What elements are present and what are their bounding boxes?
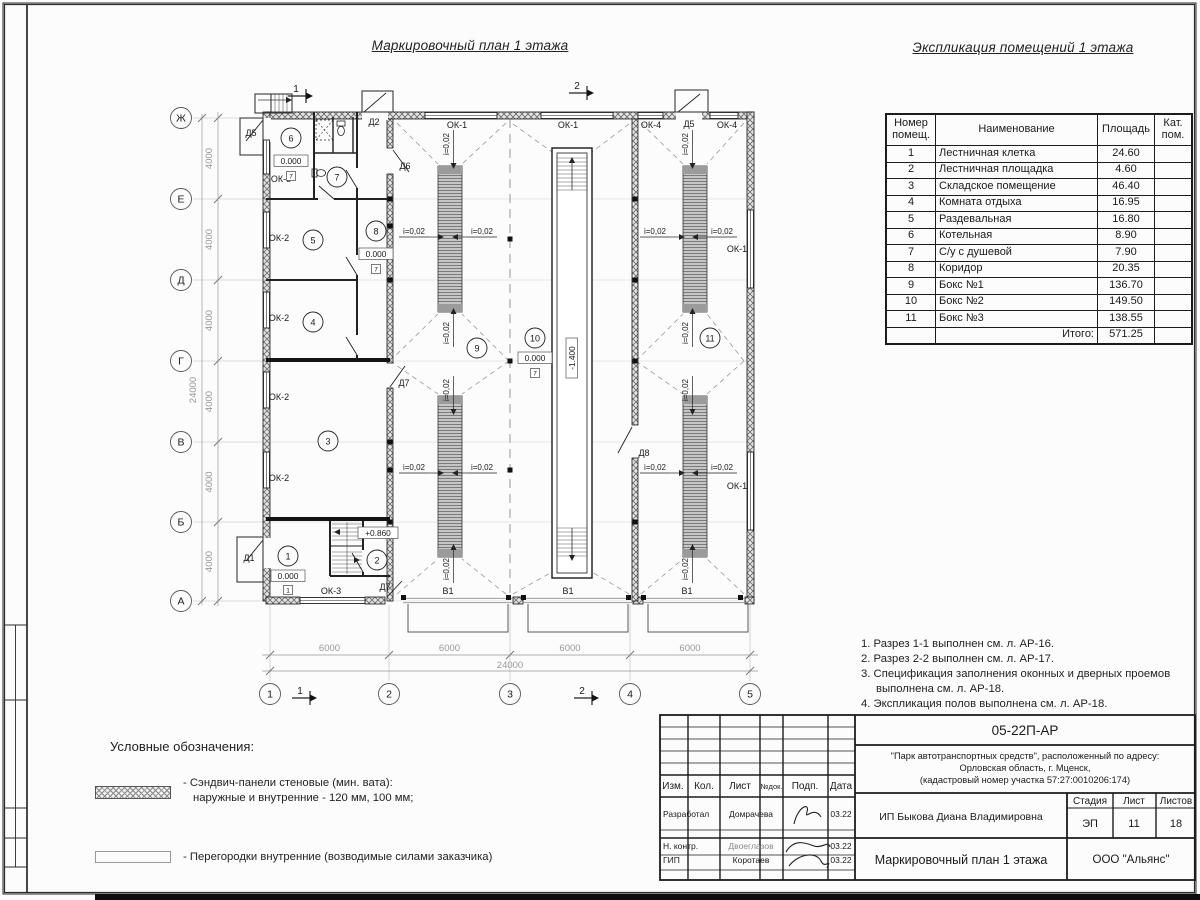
room-number: 2 [374, 555, 379, 565]
table-row: 8Коридор20.35 [886, 261, 1192, 278]
signature-role: ГИП [663, 855, 680, 865]
project-line-1: "Парк автотранспортных средств", располо… [891, 751, 1160, 761]
grid-bubble-label: 1 [267, 689, 273, 701]
opening-mark: ОК-4 [717, 120, 737, 130]
elevation-mark: 0.000 [274, 155, 308, 167]
room-name-cell: Лестничная площадка [936, 162, 1098, 179]
drawing-sheet: { "sheet": { "plan_title": "Маркировочны… [0, 0, 1200, 900]
grid-bubble-label: 3 [507, 689, 513, 701]
total-cat-cell [1155, 327, 1193, 344]
opening-mark: ОК-2 [269, 313, 289, 323]
elevation-mark: +0.860 [358, 527, 398, 539]
grid-bubble-label: Ж [176, 113, 186, 125]
opening-mark: В1 [681, 586, 692, 596]
explication-table: Номер помещ. Наименование Площадь Кат. п… [885, 113, 1193, 345]
room-category-cell [1155, 245, 1193, 262]
opening-mark: В1 [562, 586, 573, 596]
opening-mark: ОК-2 [269, 392, 289, 402]
room-number-cell: 5 [886, 212, 936, 229]
shower-tray [316, 120, 333, 140]
room-number: 5 [310, 235, 315, 245]
elevation-mark: 0.000 [359, 248, 393, 260]
room-area-cell: 7.90 [1098, 245, 1155, 262]
company-name: ООО "Альянс" [1093, 854, 1170, 866]
room-area-cell: 16.95 [1098, 195, 1155, 212]
slope-label: i=0,02 [711, 463, 734, 472]
room-number-cell: 2 [886, 162, 936, 179]
titleblock-column-header: №док. [761, 782, 783, 791]
slope-label: i=0,02 [644, 227, 667, 236]
table-row: 6Котельная8.90 [886, 228, 1192, 245]
elevation-mark: 0.000 [518, 352, 552, 364]
floor-type-value: 7 [533, 370, 537, 377]
room-number: 6 [288, 133, 293, 143]
elevation-value: +0.860 [365, 528, 391, 538]
room-category-cell [1155, 195, 1193, 212]
stage-value: ЭП [1082, 818, 1098, 830]
signature-role: Разработал [663, 809, 709, 819]
section-mark-arrow [592, 695, 599, 702]
note-item: 4. Экспликация полов выполнена см. л. АР… [861, 697, 1183, 712]
room-number-cell: 6 [886, 228, 936, 245]
opening-mark: Д2 [368, 117, 379, 127]
dim-value: 4000 [204, 310, 215, 331]
slope-label: i=0,02 [442, 557, 451, 580]
header-room-cat: Кат. пом. [1155, 114, 1193, 146]
room-category-cell [1155, 228, 1193, 245]
room-name-cell: Раздевальная [936, 212, 1098, 229]
floor-type-value: 7 [374, 266, 378, 273]
room-number-cell: 1 [886, 146, 936, 163]
signature-date: 03.22 [830, 855, 852, 865]
opening-mark: ОК-1 [558, 120, 578, 130]
total-empty-cell [886, 327, 936, 344]
titleblock-column-header: Кол. [694, 781, 714, 792]
sheet-label: Лист [1123, 796, 1145, 807]
slope-label: i=0,02 [644, 463, 667, 472]
staircase [330, 522, 362, 574]
signature-name: Домрачева [729, 809, 773, 819]
table-row: 2Лестничная площадка4.60 [886, 162, 1192, 179]
elevation-mark: -1.400 [566, 338, 578, 378]
table-row: 10Бокс №2149.50 [886, 294, 1192, 311]
room-name-cell: Бокс №3 [936, 311, 1098, 328]
floor-type-value: 1 [286, 587, 290, 594]
opening-mark: ОК-1 [727, 244, 747, 254]
floor-type-value: 7 [289, 173, 293, 180]
doc-number: 05-22П-АР [992, 723, 1059, 738]
grid-bubble-label: 2 [386, 689, 392, 701]
signature-date: 03.22 [830, 809, 852, 819]
grid-bubble-label: Д [177, 275, 184, 287]
room-area-cell: 4.60 [1098, 162, 1155, 179]
room-number: 11 [705, 333, 714, 343]
titleblock-column-header: Изм. [662, 781, 683, 792]
signature-name: Двоеглазов [728, 841, 774, 851]
opening-mark: В1 [442, 586, 453, 596]
dim-value: 4000 [204, 391, 215, 412]
section-mark-label: 2 [579, 686, 585, 697]
grid-bubble-label: 4 [627, 689, 633, 701]
table-row: 7С/у с душевой7.90 [886, 245, 1192, 262]
slope-label: i=0,02 [681, 557, 690, 580]
note-item: 1. Разрез 1-1 выполнен см. л. АР-16. [861, 637, 1183, 652]
room-name-cell: Котельная [936, 228, 1098, 245]
room-category-cell [1155, 212, 1193, 229]
legend-sandwich-line2: наружные и внутренние - 120 мм, 100 мм; [183, 791, 513, 806]
header-room-area: Площадь [1098, 114, 1155, 146]
slope-label: i=0,02 [442, 378, 451, 401]
room-number-cell: 9 [886, 278, 936, 295]
room-category-cell [1155, 278, 1193, 295]
total-label-cell: Итого: [936, 327, 1098, 344]
table-row: 5Раздевальная16.80 [886, 212, 1192, 229]
slope-label: i=0,02 [403, 463, 426, 472]
legend-partition-text: - Перегородки внутренние (возводимые сил… [183, 850, 603, 865]
room-area-cell: 149.50 [1098, 294, 1155, 311]
elevation-value: 0.000 [366, 249, 387, 259]
sheets-value: 18 [1170, 818, 1182, 830]
slope-label: i=0,02 [442, 321, 451, 344]
title-block: 05-22П-АР "Парк автотранспортных средств… [660, 715, 1195, 880]
slope-label: i=0,02 [471, 227, 494, 236]
opening-mark: Д1 [243, 553, 254, 563]
slope-label: i=0,02 [442, 132, 451, 155]
room-area-cell: 138.55 [1098, 311, 1155, 328]
grid-bubble-label: Г [178, 356, 184, 368]
room-area-cell: 46.40 [1098, 179, 1155, 196]
titleblock-column-header: Лист [729, 781, 751, 792]
opening-mark: ОК-1 [727, 481, 747, 491]
opening-mark: ОК-1 [447, 120, 467, 130]
explication-header: Номер помещ. Наименование Площадь Кат. п… [886, 114, 1192, 146]
elevation-value: -1.400 [567, 346, 577, 370]
room-area-cell: 24.60 [1098, 146, 1155, 163]
opening-mark: Д7 [379, 582, 390, 592]
dim-value: 4000 [204, 551, 215, 572]
signature-role: Н. контр. [663, 841, 698, 851]
opening-mark: ОК-2 [269, 233, 289, 243]
elevation-value: 0.000 [278, 571, 299, 581]
room-number: 7 [334, 172, 339, 182]
room-name-cell: Бокс №2 [936, 294, 1098, 311]
slope-label: i=0,02 [681, 321, 690, 344]
room-number: 10 [530, 333, 540, 343]
room-area-cell: 16.80 [1098, 212, 1155, 229]
section-mark-label: 1 [293, 84, 299, 95]
opening-mark: Д6 [399, 161, 410, 171]
room-category-cell [1155, 146, 1193, 163]
slope-label: i=0,02 [681, 132, 690, 155]
section-mark-label: 2 [574, 81, 580, 92]
elevation-value: 0.000 [525, 353, 546, 363]
section-mark-arrow [310, 695, 317, 702]
titleblock-column-header: Дата [830, 781, 853, 792]
sheets-label: Листов [1160, 796, 1193, 807]
titleblock-sheet-title: Маркировочный план 1 этажа [875, 853, 1048, 867]
dim-value: 6000 [559, 643, 580, 654]
sheet-value: 11 [1128, 818, 1139, 830]
dim-total-value: 24000 [188, 377, 199, 403]
opening-mark: Д8 [638, 448, 649, 458]
sandwich-panel-swatch [95, 786, 171, 799]
legend-sandwich-line1: - Сэндвич-панели стеновые (мин. вата): [183, 776, 513, 791]
room-category-cell [1155, 311, 1193, 328]
dim-value: 6000 [679, 643, 700, 654]
opening-mark: ОК-2 [269, 473, 289, 483]
room-number: 4 [310, 317, 315, 327]
room-category-cell [1155, 261, 1193, 278]
grid-bubble-label: 5 [747, 689, 753, 701]
dim-value: 4000 [204, 471, 215, 492]
table-row: 9Бокс №1136.70 [886, 278, 1192, 295]
room-name-cell: Бокс №1 [936, 278, 1098, 295]
total-value-cell: 571.25 [1098, 327, 1155, 344]
table-row: 3Складское помещение46.40 [886, 179, 1192, 196]
slope-label: i=0,02 [711, 227, 734, 236]
room-number-cell: 10 [886, 294, 936, 311]
room-category-cell [1155, 179, 1193, 196]
section-mark-arrow [587, 90, 594, 97]
room-number: 9 [474, 343, 479, 353]
project-line-2: Орловская область, г. Мценск, [960, 763, 1091, 773]
partition-swatch [95, 851, 171, 863]
scan-edge-bar [95, 894, 1200, 900]
table-row: 11Бокс №3138.55 [886, 311, 1192, 328]
table-row: 4Комната отдыха16.95 [886, 195, 1192, 212]
opening-mark: ОК-3 [321, 586, 341, 596]
grid-bubble-label: В [177, 437, 184, 449]
elevation-value: 0.000 [281, 156, 302, 166]
room-category-cell [1155, 162, 1193, 179]
slope-label: i=0,02 [471, 463, 494, 472]
room-name-cell: Комната отдыха [936, 195, 1098, 212]
signature-name: Коротаев [733, 855, 770, 865]
client-name: ИП Быкова Диана Владимировна [879, 811, 1043, 823]
grid-bubble-label: Б [178, 517, 185, 529]
room-number-cell: 3 [886, 179, 936, 196]
gates [401, 595, 745, 603]
room-number: 1 [285, 551, 290, 561]
room-category-cell [1155, 294, 1193, 311]
table-total-row: Итого:571.25 [886, 327, 1192, 344]
note-item: 3. Спецификация заполнения оконных и две… [861, 667, 1183, 697]
room-number: 3 [325, 436, 330, 446]
signature-date: 03.22 [830, 841, 852, 851]
wall-junctions [388, 197, 638, 525]
room-name-cell: С/у с душевой [936, 245, 1098, 262]
room-name-cell: Лестничная клетка [936, 146, 1098, 163]
notes-list: 1. Разрез 1-1 выполнен см. л. АР-16.2. Р… [861, 637, 1183, 712]
room-number-cell: 4 [886, 195, 936, 212]
project-line-3: (кадастровый номер участка 57:27:0010206… [920, 775, 1130, 785]
dim-total-value: 24000 [497, 660, 523, 671]
room-name-cell: Складское помещение [936, 179, 1098, 196]
dim-value: 4000 [204, 229, 215, 250]
section-mark-arrow [306, 93, 313, 100]
dim-value: 6000 [319, 643, 340, 654]
titleblock-column-header: Подп. [792, 781, 819, 792]
dim-value: 4000 [204, 148, 215, 169]
header-room-name: Наименование [936, 114, 1098, 146]
section-mark-label: 1 [297, 686, 303, 697]
explication-title: Экспликация помещений 1 этажа [880, 40, 1166, 55]
note-item: 2. Разрез 2-2 выполнен см. л. АР-17. [861, 652, 1183, 667]
opening-mark: ОК-4 [641, 120, 661, 130]
room-number: 8 [373, 226, 378, 236]
slope-label: i=0,02 [681, 378, 690, 401]
room-name-cell: Коридор [936, 261, 1098, 278]
grid-bubble-label: А [177, 596, 184, 608]
legend-title: Условные обозначения: [110, 739, 254, 754]
opening-mark: Д5 [245, 128, 256, 138]
slope-label: i=0,02 [403, 227, 426, 236]
table-row: 1Лестничная клетка24.60 [886, 146, 1192, 163]
room-number-cell: 7 [886, 245, 936, 262]
room-area-cell: 136.70 [1098, 278, 1155, 295]
opening-mark: Д5 [683, 119, 694, 129]
dim-value: 6000 [439, 643, 460, 654]
room-number-cell: 8 [886, 261, 936, 278]
room-area-cell: 20.35 [1098, 261, 1155, 278]
opening-mark: Д7 [398, 378, 409, 388]
room-number-cell: 11 [886, 311, 936, 328]
stage-label: Стадия [1073, 796, 1107, 807]
room-area-cell: 8.90 [1098, 228, 1155, 245]
plan-title: Маркировочный план 1 этажа [330, 38, 610, 53]
header-room-number: Номер помещ. [886, 114, 936, 146]
elevation-mark: 0.000 [271, 570, 305, 582]
gate-ramps [408, 604, 748, 632]
grid-bubble-label: Е [177, 194, 184, 206]
